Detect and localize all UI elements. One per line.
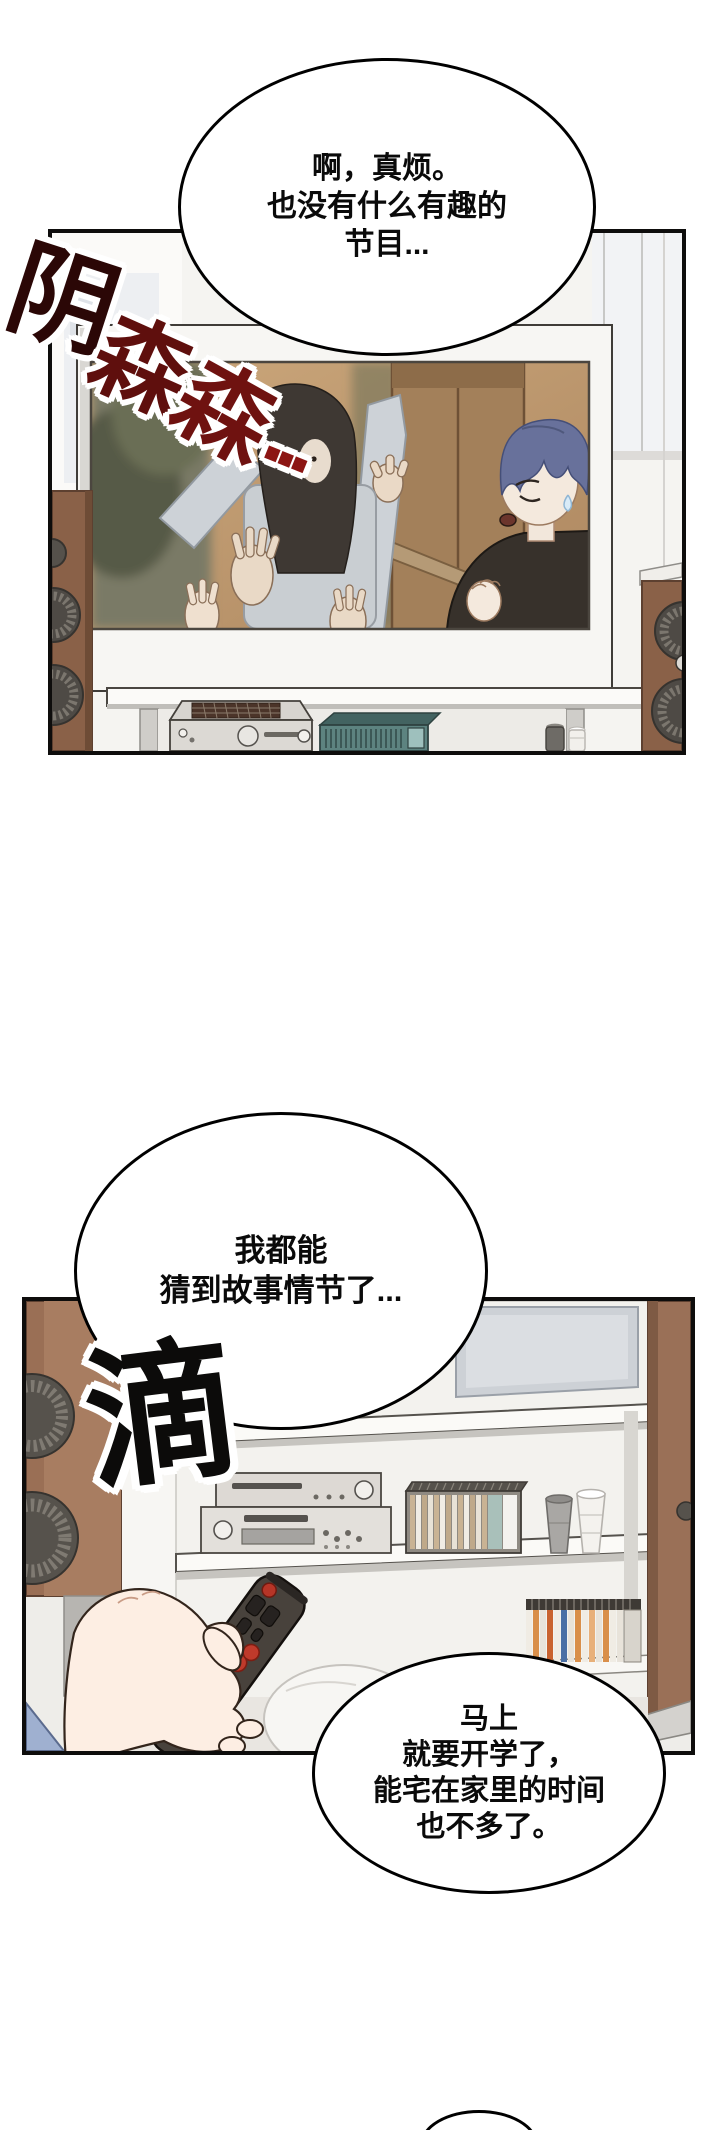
right-speaker <box>640 563 682 751</box>
bubble-line: 啊，真烦。 <box>312 150 462 188</box>
bubble-line: 也不多了。 <box>416 1809 561 1845</box>
left-speaker <box>52 491 92 751</box>
speech-bubble-3: 马上 就要开学了， 能宅在家里的时间 也不多了。 <box>312 1652 666 1894</box>
comic-page: 阴森森... 啊，真烦。 也没有什么有趣的 节目... <box>0 0 720 2130</box>
bubble-line: 也没有什么有趣的 <box>267 188 507 226</box>
amplifier <box>170 701 312 751</box>
finger <box>237 1720 263 1738</box>
bubble-line: 节目... <box>344 226 429 264</box>
cd-player <box>320 713 440 751</box>
man-fist <box>467 580 501 621</box>
bubble-line: 猜到故事情节了... <box>160 1271 403 1311</box>
cd-rack <box>406 1482 527 1553</box>
next-bubble-peek <box>420 2110 538 2130</box>
sfx-di: 滴 <box>77 1331 246 1500</box>
bubble-line: 能宅在家里的时间 <box>373 1773 605 1809</box>
bubble-line: 我都能 <box>235 1231 328 1271</box>
man-open-mouth <box>500 514 516 526</box>
speech-bubble-1: 啊，真烦。 也没有什么有趣的 节目... <box>178 58 596 356</box>
bubble-line: 马上 <box>460 1701 518 1737</box>
book-stack <box>526 1599 641 1662</box>
bubble-line: 就要开学了， <box>402 1737 576 1773</box>
finger <box>219 1737 245 1751</box>
